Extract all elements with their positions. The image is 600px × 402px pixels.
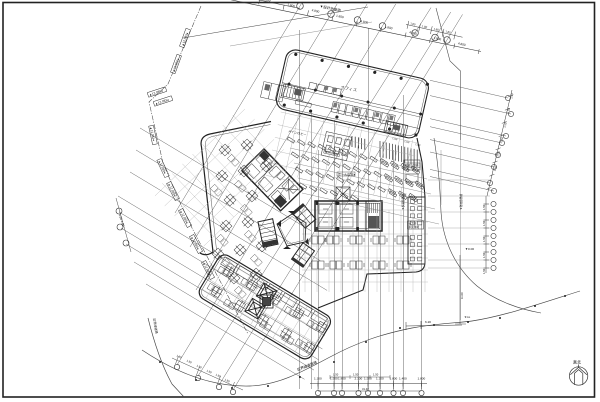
svg-text:▼敦地境界線: ▼敦地境界線	[459, 194, 463, 210]
svg-text:1.50: 1.50	[482, 268, 486, 274]
svg-text:▼GL: ▼GL	[464, 315, 471, 319]
svg-text:1.100: 1.100	[314, 377, 322, 381]
svg-text:1.50: 1.50	[482, 252, 486, 258]
svg-text:1.50: 1.50	[482, 204, 486, 210]
svg-text:1.50: 1.50	[373, 373, 379, 377]
svg-text:▼歩道境界線: ▼歩道境界線	[401, 194, 405, 210]
svg-text:1.400: 1.400	[399, 377, 407, 381]
svg-text:1.50: 1.50	[353, 373, 359, 377]
svg-text:1.800: 1.800	[418, 377, 426, 381]
svg-text:6.20: 6.20	[425, 320, 431, 324]
svg-text:ホール広場◂: ホール広場◂	[338, 171, 355, 176]
svg-text:1.50: 1.50	[482, 236, 486, 242]
svg-text:ナガモ: ナガモ	[409, 221, 417, 225]
svg-text:▼0.00: ▼0.00	[465, 247, 474, 251]
svg-text:車乗降場: 車乗降場	[409, 225, 420, 229]
svg-text:1.800: 1.800	[390, 377, 398, 381]
svg-text:真北: 真北	[573, 359, 581, 365]
svg-text:11.00: 11.00	[460, 292, 464, 299]
svg-text:1.50: 1.50	[333, 373, 339, 377]
svg-text:1.50: 1.50	[482, 220, 486, 226]
